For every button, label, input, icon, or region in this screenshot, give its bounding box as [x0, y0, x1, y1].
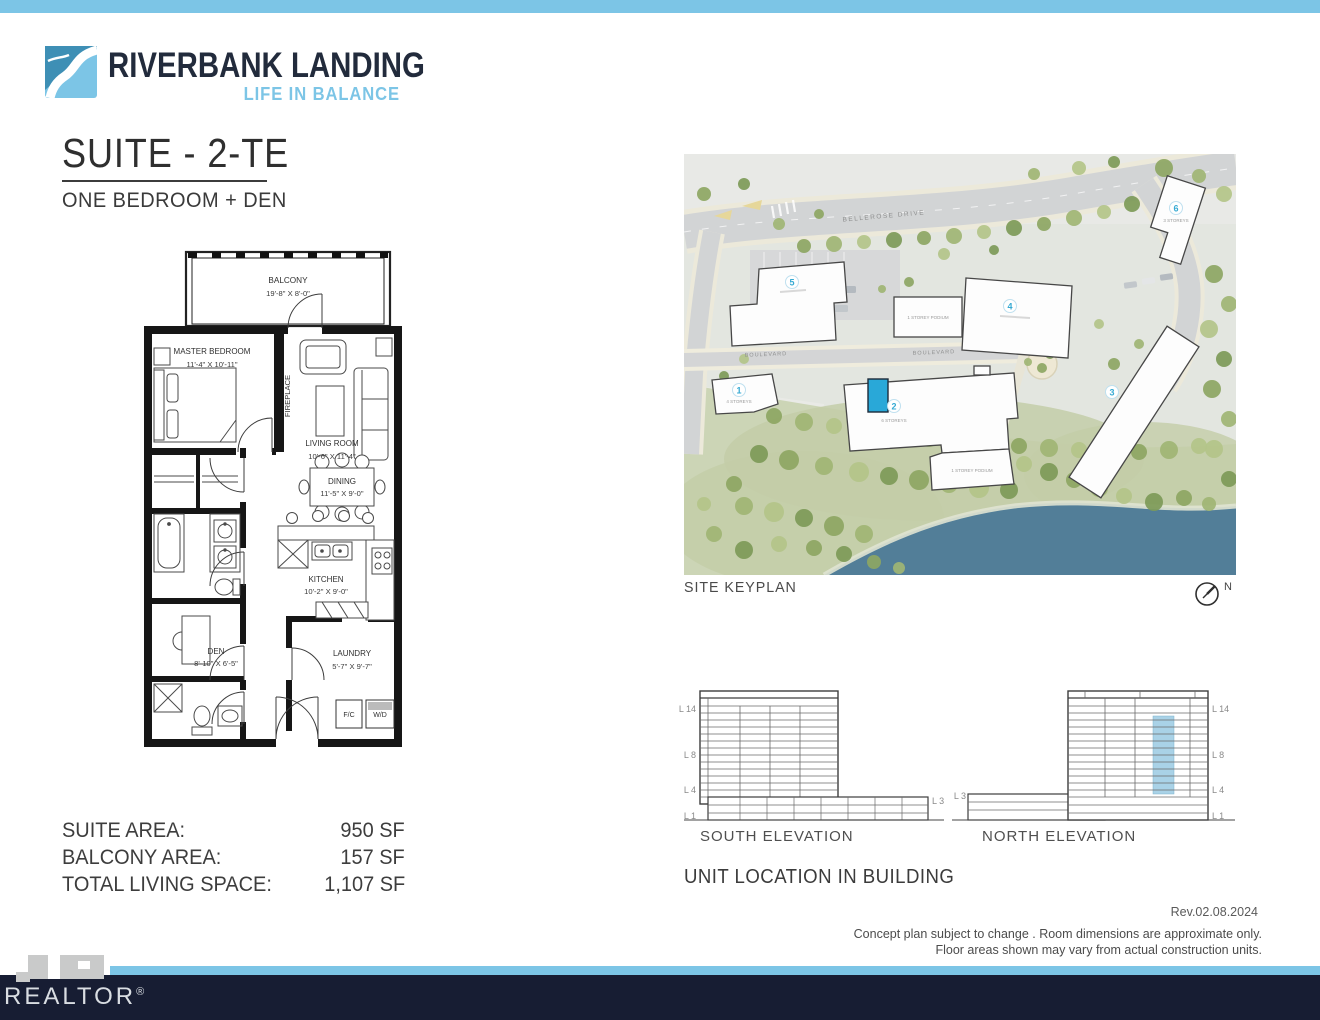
north-l8: L 8 — [1212, 750, 1224, 760]
laundry-dims: 5'-7" X 9'-7" — [332, 662, 372, 671]
north-l14: L 14 — [1212, 704, 1229, 714]
suite-subtitle: ONE BEDROOM + DEN — [62, 189, 287, 213]
building-6-number: 6 — [1173, 204, 1178, 214]
fireplace-label: FIREPLACE — [283, 375, 292, 417]
balcony-dims: 19'-8" X 8'-0" — [266, 289, 310, 298]
realtor-watermark: REALTOR® — [4, 983, 147, 1011]
south-l14: L 14 — [679, 704, 696, 714]
north-label: N — [1224, 581, 1232, 593]
laundry-label: LAUNDRY — [333, 649, 372, 658]
brand-logo-icon — [45, 46, 97, 98]
den-label: DEN — [208, 647, 225, 656]
site-keyplan-caption: SITE KEYPLAN — [684, 579, 797, 596]
balcony-label: BALCONY — [268, 276, 308, 285]
registered-symbol: ® — [136, 986, 147, 998]
suite-area-value: 950 SF — [341, 817, 405, 844]
building-3-number: 3 — [1109, 388, 1114, 398]
south-l4: L 4 — [684, 785, 696, 795]
unit-location-title: UNIT LOCATION IN BUILDING — [684, 866, 954, 889]
north-l4: L 4 — [1212, 785, 1224, 795]
dining-label: DINING — [328, 477, 356, 486]
building-4-number: 4 — [1007, 302, 1012, 312]
south-l3: L 3 — [932, 796, 944, 806]
balcony-area-value: 157 SF — [341, 844, 405, 871]
flyer-page: RIVERBANK LANDING LIFE IN BALANCE SUITE … — [0, 0, 1320, 1020]
balcony-area-label: BALCONY AREA: — [62, 844, 221, 871]
living-dims: 10'-6" X 11'-4" — [308, 452, 356, 461]
north-l3: L 3 — [954, 791, 966, 801]
north-arrow: N — [1192, 578, 1242, 610]
south-elevation-caption: SOUTH ELEVATION — [700, 828, 854, 845]
south-l1: L 1 — [684, 811, 696, 821]
building-1-number: 1 — [736, 386, 741, 396]
suite-title-underline — [62, 180, 267, 182]
suite-area-row: SUITE AREA: 950 SF — [62, 817, 405, 844]
building-1-storeys: 4 STOREYS — [726, 399, 751, 404]
kitchen-dims: 10'-2" X 9'-0" — [304, 587, 348, 596]
realtor-text: REALTOR — [4, 983, 136, 1010]
master-label: MASTER BEDROOM — [174, 347, 251, 356]
revision-date: Rev.02.08.2024 — [1171, 905, 1258, 919]
unit-highlight-keyplan — [868, 379, 888, 412]
building-5-number: 5 — [789, 278, 794, 288]
den-dims: 8'-10" X 6'-5" — [194, 659, 238, 668]
disclaimer-line-2: Floor areas shown may vary from actual c… — [854, 943, 1262, 959]
bottom-navy-bar — [0, 975, 1320, 1020]
watermark-logo-gap — [48, 955, 60, 979]
dining-dims: 11'-5" X 9'-0" — [320, 489, 363, 498]
watermark-logo — [28, 955, 104, 979]
area-summary: SUITE AREA: 950 SF BALCONY AREA: 157 SF … — [62, 817, 405, 898]
south-l8: L 8 — [684, 750, 696, 760]
master-dims: 11'-4" X 10'-11" — [186, 360, 237, 369]
north-elevation: L 14 L 8 L 4 L 1 L 3 NORTH ELEVATION — [950, 686, 1240, 846]
watermark-logo-notch — [78, 961, 90, 969]
north-elevation-caption: NORTH ELEVATION — [982, 828, 1136, 845]
brand-tagline: LIFE IN BALANCE — [131, 84, 400, 105]
podium-label-1: 1 STOREY PODIUM — [907, 315, 949, 320]
brand-name: RIVERBANK LANDING — [108, 46, 425, 86]
south-elevation: L 14 L 8 L 4 L 1 L 3 SOUTH ELEVATION — [678, 686, 950, 846]
disclaimer-line-1: Concept plan subject to change . Room di… — [854, 927, 1262, 943]
podium-label-2: 1 STOREY PODIUM — [951, 468, 993, 473]
site-keyplan: 1 2 3 4 5 6 4 STOREYS 6 STOREYS 3 STOREY… — [684, 154, 1236, 575]
balcony-area-row: BALCONY AREA: 157 SF — [62, 844, 405, 871]
building-6-storeys: 3 STOREYS — [1163, 218, 1188, 223]
total-area-value: 1,107 SF — [324, 871, 405, 898]
building-2-number: 2 — [891, 402, 896, 412]
watermark-logo-foot — [16, 972, 30, 982]
building-2-storeys: 6 STOREYS — [881, 418, 906, 423]
disclaimer: Concept plan subject to change . Room di… — [854, 927, 1262, 958]
wd-label: W/D — [373, 712, 387, 719]
floorplan-drawing: BALCONY 19'-8" X 8'-0" — [140, 250, 412, 810]
kitchen-label: KITCHEN — [308, 575, 343, 584]
fc-label: F/C — [343, 712, 354, 719]
total-area-row: TOTAL LIVING SPACE: 1,107 SF — [62, 871, 405, 898]
balcony: BALCONY 19'-8" X 8'-0" — [186, 252, 390, 326]
suite-title: SUITE - 2-TE — [62, 130, 289, 177]
north-l1: L 1 — [1212, 811, 1224, 821]
top-accent-bar — [0, 0, 1320, 13]
bottom-accent-stripe — [0, 966, 1320, 975]
suite-area-label: SUITE AREA: — [62, 817, 185, 844]
total-area-label: TOTAL LIVING SPACE: — [62, 871, 272, 898]
living-label: LIVING ROOM — [305, 439, 359, 448]
